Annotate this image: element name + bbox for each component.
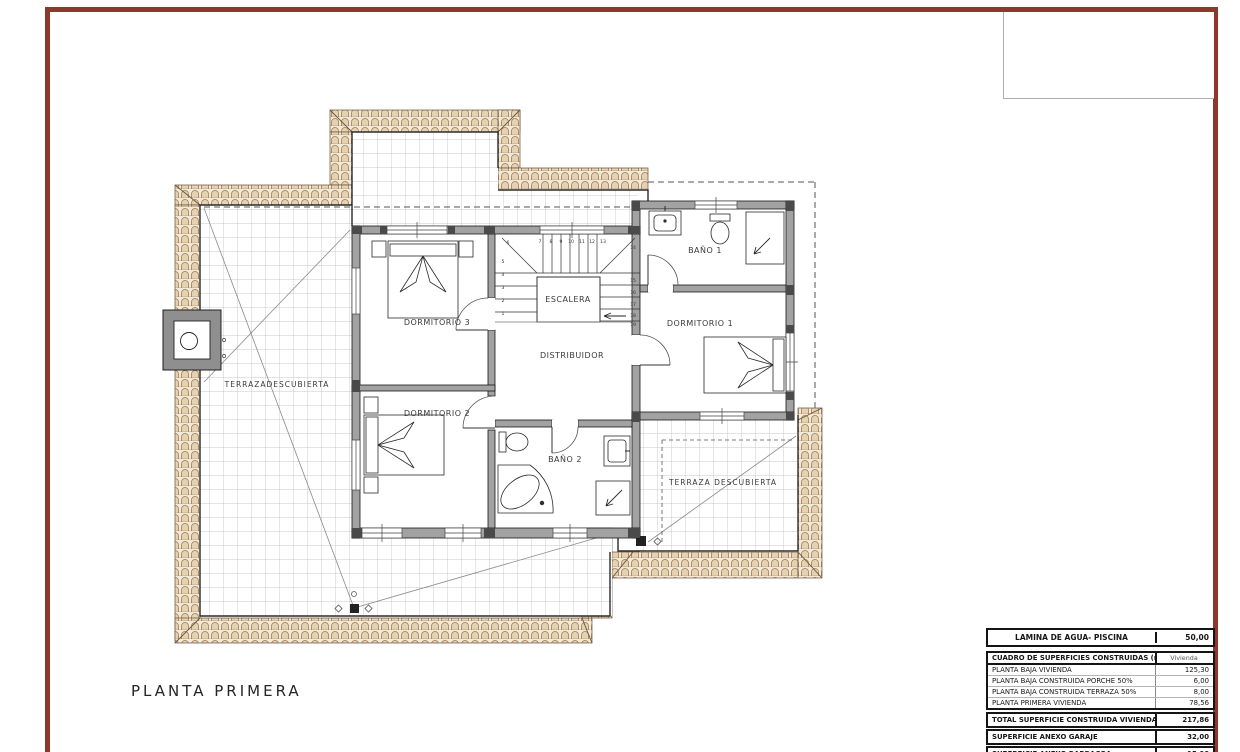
table-anexo-garaje: SUPERFICIE ANEXO GARAJE 32,00 [986,729,1215,745]
row-value: 78,56 [1155,698,1213,708]
table-anexo-barbacoa: SUPERFICIE ANEXO BARBACOA 15,00 [986,746,1215,752]
row-label: PLANTA BAJA CONSTRUIDA TERRAZA 50% [988,687,1155,697]
step-1: 1 [502,311,505,317]
staircase [495,234,640,322]
table-row: PLANTA BAJA CONSTRUIDA PORCHE 50% 6,00 [988,675,1213,686]
lamina-value: 50,00 [1155,632,1213,643]
step-13: 13 [600,239,606,245]
row-value: 8,00 [1155,687,1213,697]
step-2: 2 [502,298,505,304]
drawing-sheet: 1 2 3 4 5 6 7 8 9 10 11 12 13 14 15 16 1… [0,0,1240,752]
label-dormitorio-3: DORMITORIO 3 [404,318,470,327]
step-16: 16 [630,290,636,296]
bathroom1-fixtures [649,206,784,264]
table-row: PLANTA PRIMERA VIVIENDA 78,56 [988,697,1213,708]
label-bano-1: BAÑO 1 [688,245,722,255]
step-10: 10 [568,239,574,245]
step-5: 5 [502,259,505,265]
label-bano-2: BAÑO 2 [548,454,582,464]
row-value: 125,30 [1155,665,1213,675]
table-total-vivienda: TOTAL SUPERFICIE CONSTRUIDA VIVIENDA 217… [986,712,1215,728]
step-15: 15 [630,278,636,284]
row-value: 217,86 [1155,714,1213,726]
step-14: 14 [630,245,636,251]
step-6: 6 [507,240,510,246]
step-19: 19 [630,322,636,328]
cuadro-header-label: CUADRO DE SUPERFICIES CONSTRUIDAS (m2) [988,653,1155,663]
table-header-row: CUADRO DE SUPERFICIES CONSTRUIDAS (m2) V… [988,653,1213,665]
row-label: PLANTA BAJA CONSTRUIDA PORCHE 50% [988,676,1155,686]
table-row: SUPERFICIE ANEXO BARBACOA 15,00 [988,748,1213,752]
table-row: PLANTA BAJA CONSTRUIDA TERRAZA 50% 8,00 [988,686,1213,697]
bed-dormitorio-3 [372,241,473,318]
step-3: 3 [502,285,505,291]
label-escalera: ESCALERA [545,295,590,304]
lamina-label: LAMINA DE AGUA- PISCINA [988,630,1155,645]
step-4: 4 [502,272,505,278]
table-row: SUPERFICIE ANEXO GARAJE 32,00 [988,731,1213,743]
table-row: LAMINA DE AGUA- PISCINA 50,00 [988,630,1213,645]
row-value: 15,00 [1155,748,1213,752]
label-dormitorio-2: DORMITORIO 2 [404,409,470,418]
row-label: TOTAL SUPERFICIE CONSTRUIDA VIVIENDA [988,714,1155,726]
table-row: PLANTA BAJA VIVIENDA 125,30 [988,665,1213,675]
step-18: 18 [630,313,636,319]
bed-dormitorio-1 [704,337,786,393]
bathroom2-fixtures [495,432,630,516]
step-17: 17 [630,302,636,308]
step-9: 9 [560,239,563,245]
row-value: 6,00 [1155,676,1213,686]
table-row: TOTAL SUPERFICIE CONSTRUIDA VIVIENDA 217… [988,714,1213,726]
label-distribuidor: DISTRIBUIDOR [540,351,604,360]
step-8: 8 [550,239,553,245]
step-7: 7 [539,239,542,245]
label-terraza-derecha: TERRAZA DESCUBIERTA [668,478,777,487]
label-dormitorio-1: DORMITORIO 1 [667,319,733,328]
table-cuadro-superficies: CUADRO DE SUPERFICIES CONSTRUIDAS (m2) V… [986,651,1215,710]
row-label: PLANTA PRIMERA VIVIENDA [988,698,1155,708]
surface-tables: LAMINA DE AGUA- PISCINA 50,00 CUADRO DE … [986,628,1215,752]
step-12: 12 [589,239,595,245]
cuadro-header-value: Vivienda [1155,653,1213,663]
label-terraza-izquierda: TERRAZADESCUBIERTA [224,380,330,389]
page-title: PLANTA PRIMERA [131,682,302,700]
row-label: SUPERFICIE ANEXO BARBACOA [988,748,1155,752]
table-lamina-agua: LAMINA DE AGUA- PISCINA 50,00 [986,628,1215,647]
row-value: 32,00 [1155,731,1213,743]
step-11: 11 [579,239,585,245]
row-label: SUPERFICIE ANEXO GARAJE [988,731,1155,743]
row-label: PLANTA BAJA VIVIENDA [988,665,1155,675]
chimney [163,310,226,370]
